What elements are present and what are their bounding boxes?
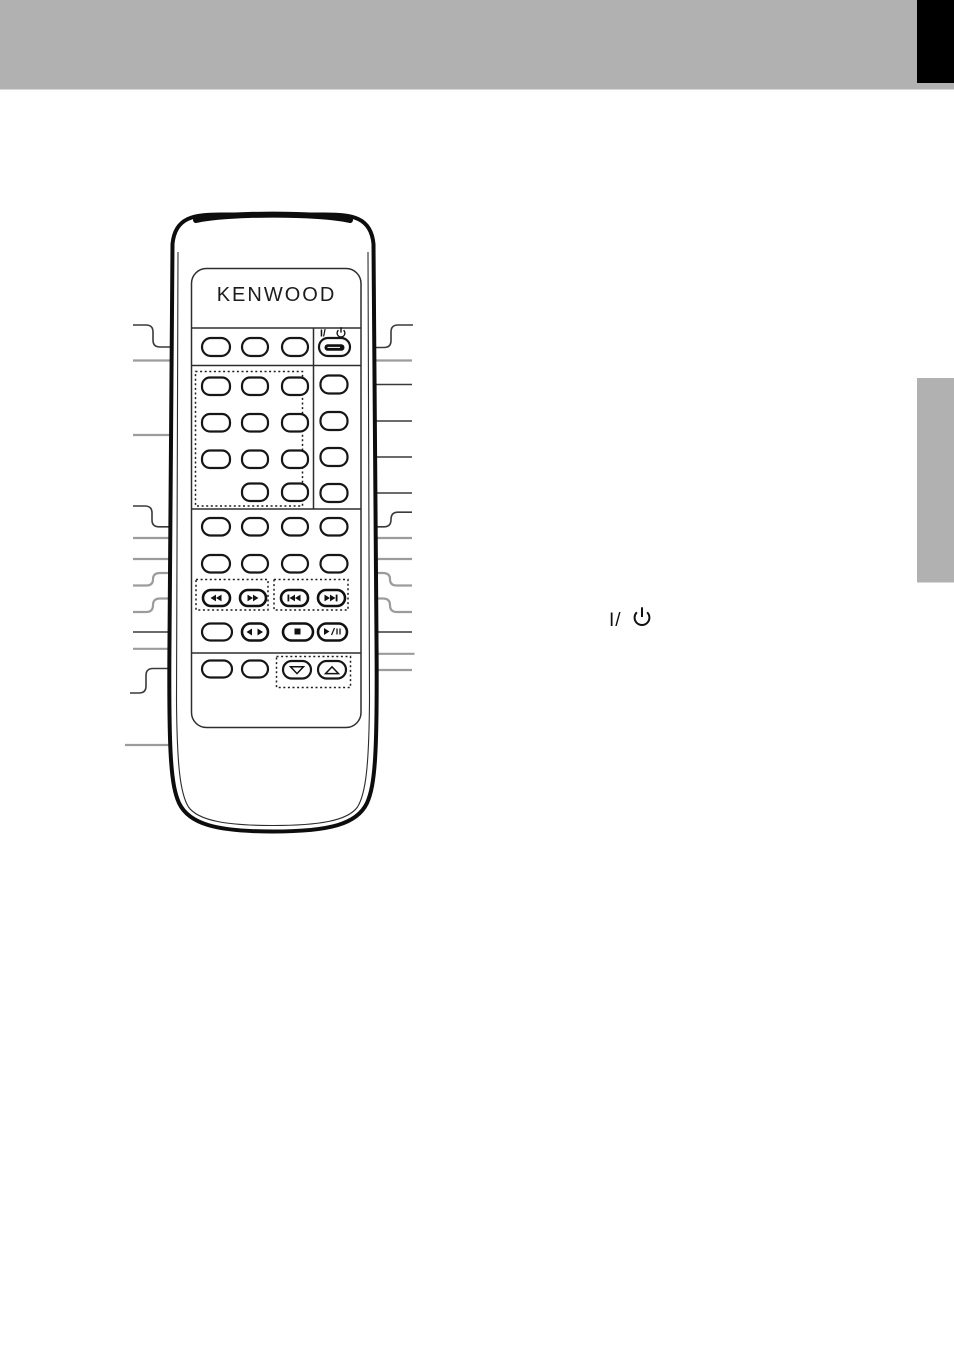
brand-logo: KENWOOD: [217, 284, 337, 306]
function-button-1[interactable]: [202, 338, 230, 356]
keypad-button-1[interactable]: [202, 378, 230, 396]
row-e-button-2[interactable]: [242, 661, 268, 678]
power-symbol-annotation: I/: [609, 607, 649, 631]
keypad-button-3[interactable]: [282, 378, 308, 396]
row-a-button-4[interactable]: [321, 518, 348, 536]
stop-icon: [295, 629, 301, 635]
row-a-button-2[interactable]: [242, 518, 268, 536]
side-button-2[interactable]: [321, 412, 348, 430]
standby-power-icon: [635, 607, 650, 625]
row-a-button-1[interactable]: [202, 518, 230, 536]
tuning-mode-button[interactable]: [242, 624, 268, 641]
row-b-button-2[interactable]: [242, 555, 268, 573]
side-button-3[interactable]: [321, 448, 348, 466]
row-d-button-1[interactable]: [202, 624, 232, 641]
keypad-button-10[interactable]: [242, 484, 268, 502]
keypad-button-2[interactable]: [242, 378, 268, 396]
keypad-button-7[interactable]: [202, 451, 230, 469]
row-e-button-1[interactable]: [202, 661, 232, 678]
top-header-bar: [0, 0, 954, 90]
function-button-3[interactable]: [282, 338, 308, 356]
row-b-button-3[interactable]: [282, 555, 308, 573]
corner-index-tab: [917, 0, 954, 83]
remote-control: KENWOOD I/: [169, 215, 376, 832]
function-button-2[interactable]: [242, 338, 268, 356]
row-b-button-4[interactable]: [321, 555, 348, 573]
side-button-1[interactable]: [321, 376, 348, 394]
side-button-4[interactable]: [321, 484, 348, 502]
keypad-button-11[interactable]: [282, 484, 308, 502]
keypad-button-8[interactable]: [242, 451, 268, 469]
keypad-button-5[interactable]: [242, 414, 268, 432]
keypad-button-4[interactable]: [202, 414, 230, 432]
manual-page: KENWOOD I/: [0, 0, 954, 1350]
power-symbol-text: I/: [609, 610, 622, 631]
keypad-button-6[interactable]: [282, 414, 308, 432]
side-index-tab: [917, 378, 954, 583]
row-a-button-3[interactable]: [282, 518, 308, 536]
keypad-button-9[interactable]: [282, 451, 308, 469]
row-b-button-1[interactable]: [202, 555, 230, 573]
